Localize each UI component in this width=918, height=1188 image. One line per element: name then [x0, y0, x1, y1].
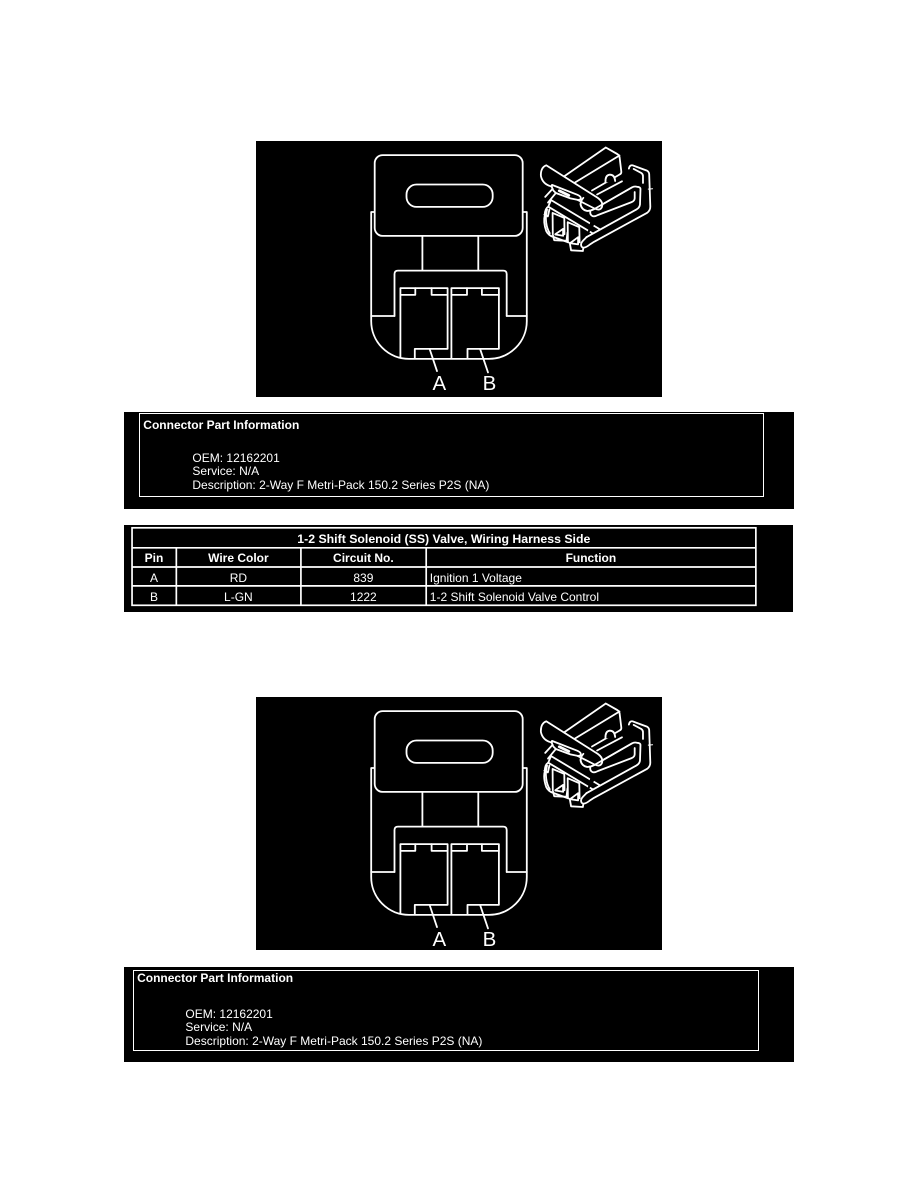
svg-text:A: A [433, 372, 447, 395]
svg-text:B: B [483, 372, 497, 395]
